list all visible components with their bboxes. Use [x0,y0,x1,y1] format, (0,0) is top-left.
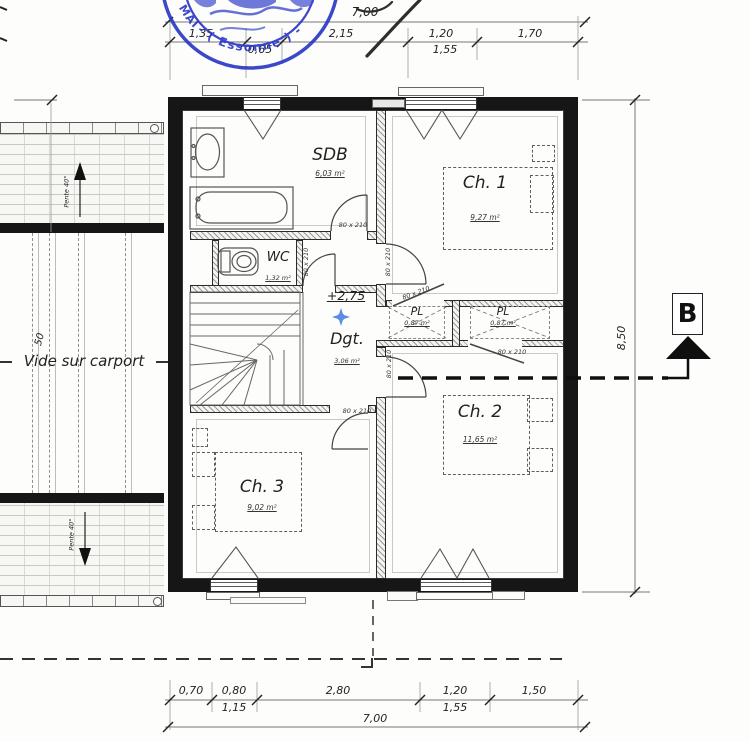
room-label-ch3: Ch. 3 [226,478,298,497]
room-area-dgt: 3,06 m² [316,358,378,365]
nightstand-ch2 [527,448,553,472]
carport-roof-bottom [0,503,164,595]
room-label-pl1: PL [398,306,436,318]
room-label-sdb: SDB [295,146,365,165]
door-size-label-wc: 80 x 210 [302,242,310,282]
stamp-arc-text: - ( Essonne ) - [195,22,305,54]
section-arrow-icon [666,336,711,359]
dim-bottom-overall: 7,00 [353,713,397,725]
room-area-wc: 1,32 m² [251,275,305,282]
gutter-end-circle-top [150,124,159,133]
shutter-box-ch2 [387,591,418,601]
slope-label-bottom: Pente 40° [68,511,75,559]
mairie-stamp-icon: - ( Essonne ) - MAI [150,0,360,78]
stamp-left-text: MAI [176,2,202,30]
window-sdb [243,98,281,109]
dim-bottom-sub-1: 1,55 [435,702,475,714]
nightstand-ch1 [530,175,554,213]
carport-beam-bottom [0,493,164,503]
shutter-box-ch2 [492,591,525,600]
window-sill-exterior [230,597,306,604]
partition-hall-ch1-upper [376,110,386,244]
window-sill-exterior [416,592,496,600]
wall-left [168,97,182,592]
room-area-pl1: 0,87 m² [394,320,440,327]
dim-bottom-sub-0: 1,15 [214,702,254,714]
pl2-door-opening [468,339,522,348]
window-sill-exterior [202,85,298,96]
nightstand-ch1 [532,145,555,162]
level-marker-icon [332,308,350,326]
partition-pl-divider [452,300,460,347]
partition-ch2-ch3 [376,397,386,579]
carport-roof-top [0,134,164,224]
room-label-wc: WC [256,250,300,265]
room-area-ch1: 9,27 m² [453,214,517,222]
void-label-dash-left [0,361,12,363]
gutter-end-circle-bottom [153,597,162,606]
roof-overhang-lines [0,600,562,667]
window-ch1 [405,98,477,109]
window-ch3 [210,580,258,591]
dim-top-sub-1: 1,55 [425,44,465,56]
door-size-label-sdb: 80 x 210 [333,221,373,229]
room-area-pl2: 0,87 m² [478,320,528,327]
nightstand-ch3 [192,505,215,530]
slope-label-top: Pente 40° [63,168,70,216]
dim-top-chain-3: 1,70 [510,28,550,40]
room-label-ch2: Ch. 2 [438,403,522,422]
dim-bottom-chain-0: 0,70 [171,685,211,697]
carport-gutter-bottom [0,595,164,607]
closet-corner-ch3 [192,428,208,447]
room-area-ch3: 9,02 m² [228,504,296,512]
dim-right-overall: 8,50 [616,316,628,360]
door-size-label-pl2: 80 x 210 [490,348,534,356]
partition-sdb-bottom [190,231,331,240]
section-marker-b: B [672,293,703,335]
window-ch2 [420,580,492,591]
dim-top-chain-2: 1,20 [421,28,461,40]
dim-bottom-chain-4: 1,50 [514,685,554,697]
carport-beam-top [0,223,164,233]
svg-text:- ( Essonne ) -: - ( Essonne ) - [195,22,305,54]
void-over-carport-label: Vide sur carport [14,353,154,370]
door-size-label-ch3: 80 x 210 [336,407,378,415]
room-label-pl2: PL [482,306,524,318]
dim-bottom-chain-2: 2,80 [318,685,358,697]
nightstand-ch3 [192,452,215,477]
room-area-ch2: 11,65 m² [440,436,520,444]
window-sill-exterior [398,87,484,96]
room-label-dgt: Dgt. [312,330,382,348]
dim-bottom-chain-1: 0,80 [214,685,254,697]
shutter-box-ch1 [372,99,405,108]
partition-wc-bottom [190,285,303,293]
floor-plan-scan: Vide sur carport 50 Pente 40° Pente 40° [0,0,750,742]
svg-text:MAI: MAI [176,2,202,30]
nightstand-ch2 [527,398,553,422]
wall-right [564,97,578,592]
room-area-sdb: 6,03 m² [295,170,365,178]
door-size-label-ch2: 80 x 210 [385,344,393,384]
room-label-ch1: Ch. 1 [450,174,520,193]
partition-hall-ch1-lower [376,284,386,307]
door-size-label-ch1: 80 x 210 [384,242,392,282]
dim-bottom-chain-3: 1,20 [435,685,475,697]
partition-ch3-top [190,405,330,413]
carport-gutter-top [0,122,164,134]
level-label: +2,75 [316,289,376,303]
